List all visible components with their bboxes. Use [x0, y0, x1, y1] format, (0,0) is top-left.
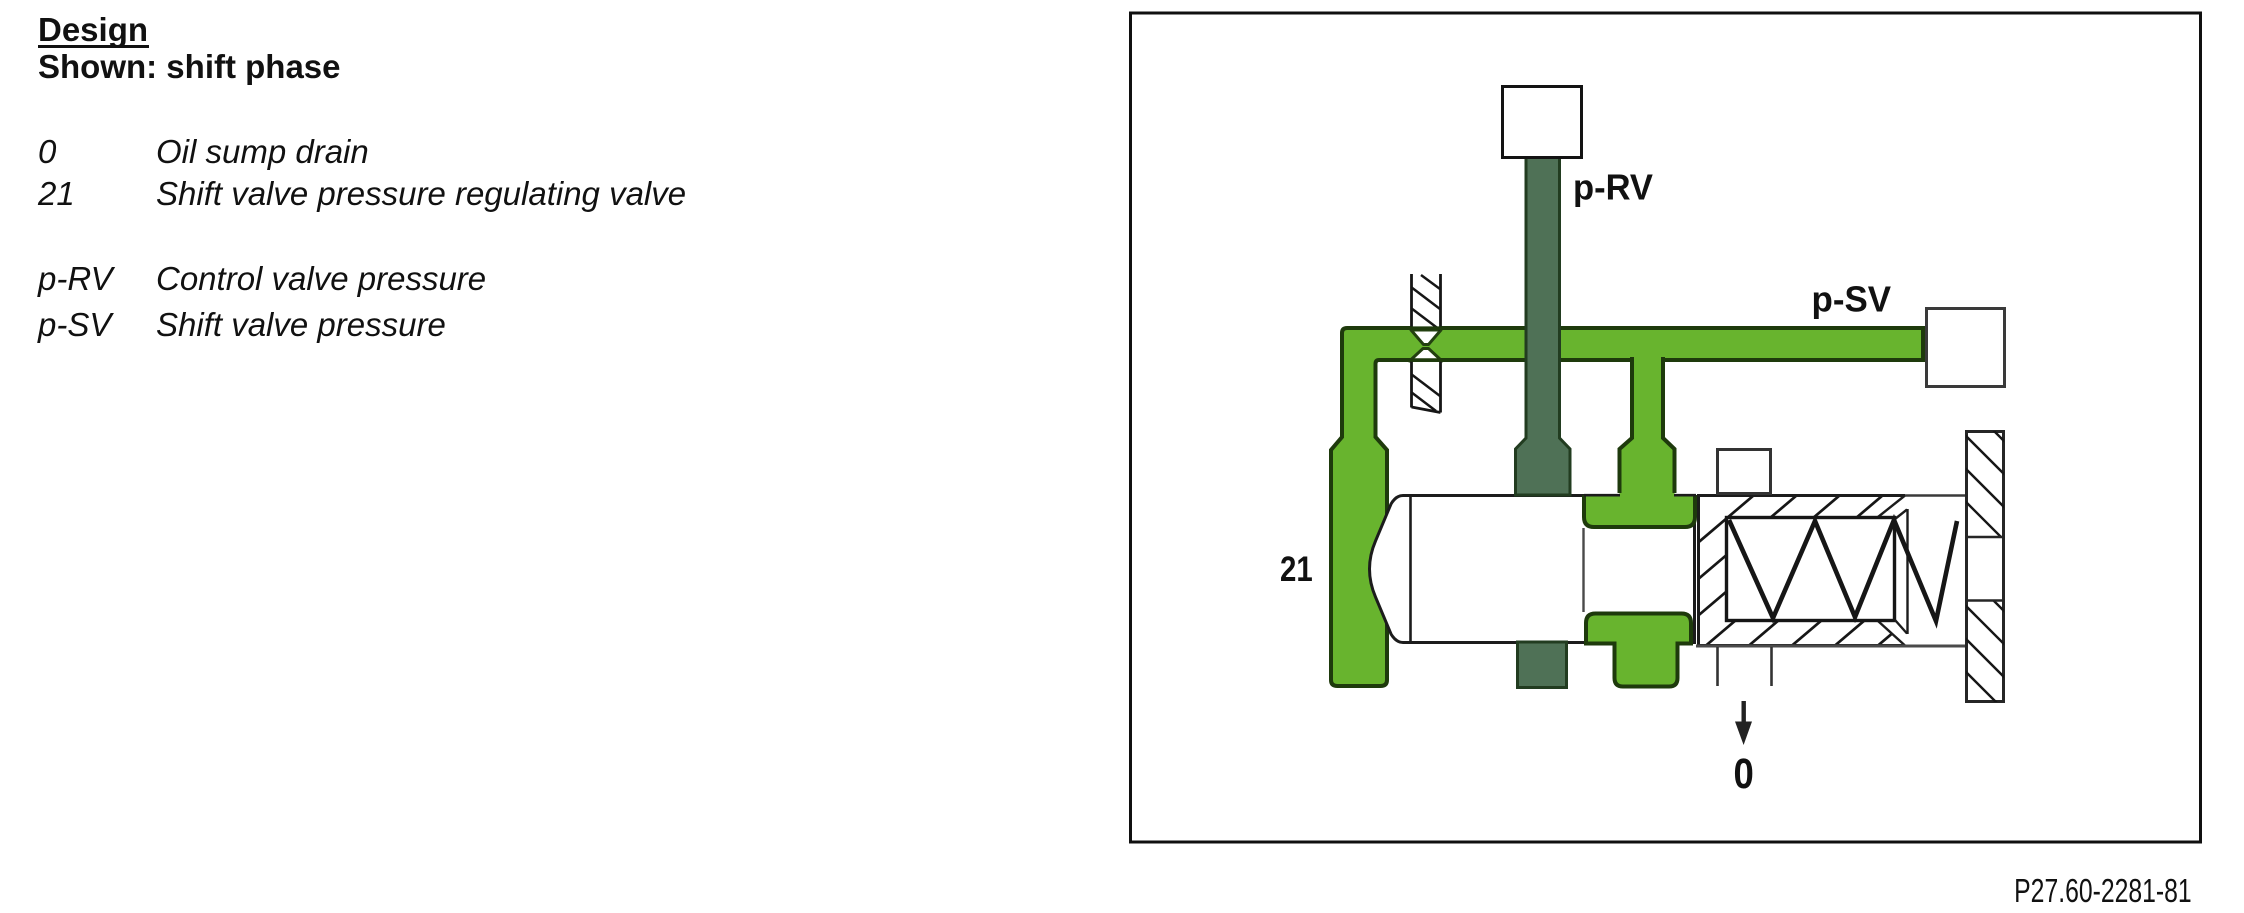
- svg-text:21: 21: [1280, 550, 1313, 589]
- svg-text:p-SV: p-SV: [1812, 279, 1892, 320]
- svg-text:0: 0: [1734, 750, 1754, 797]
- svg-text:p-RV: p-RV: [1573, 168, 1653, 208]
